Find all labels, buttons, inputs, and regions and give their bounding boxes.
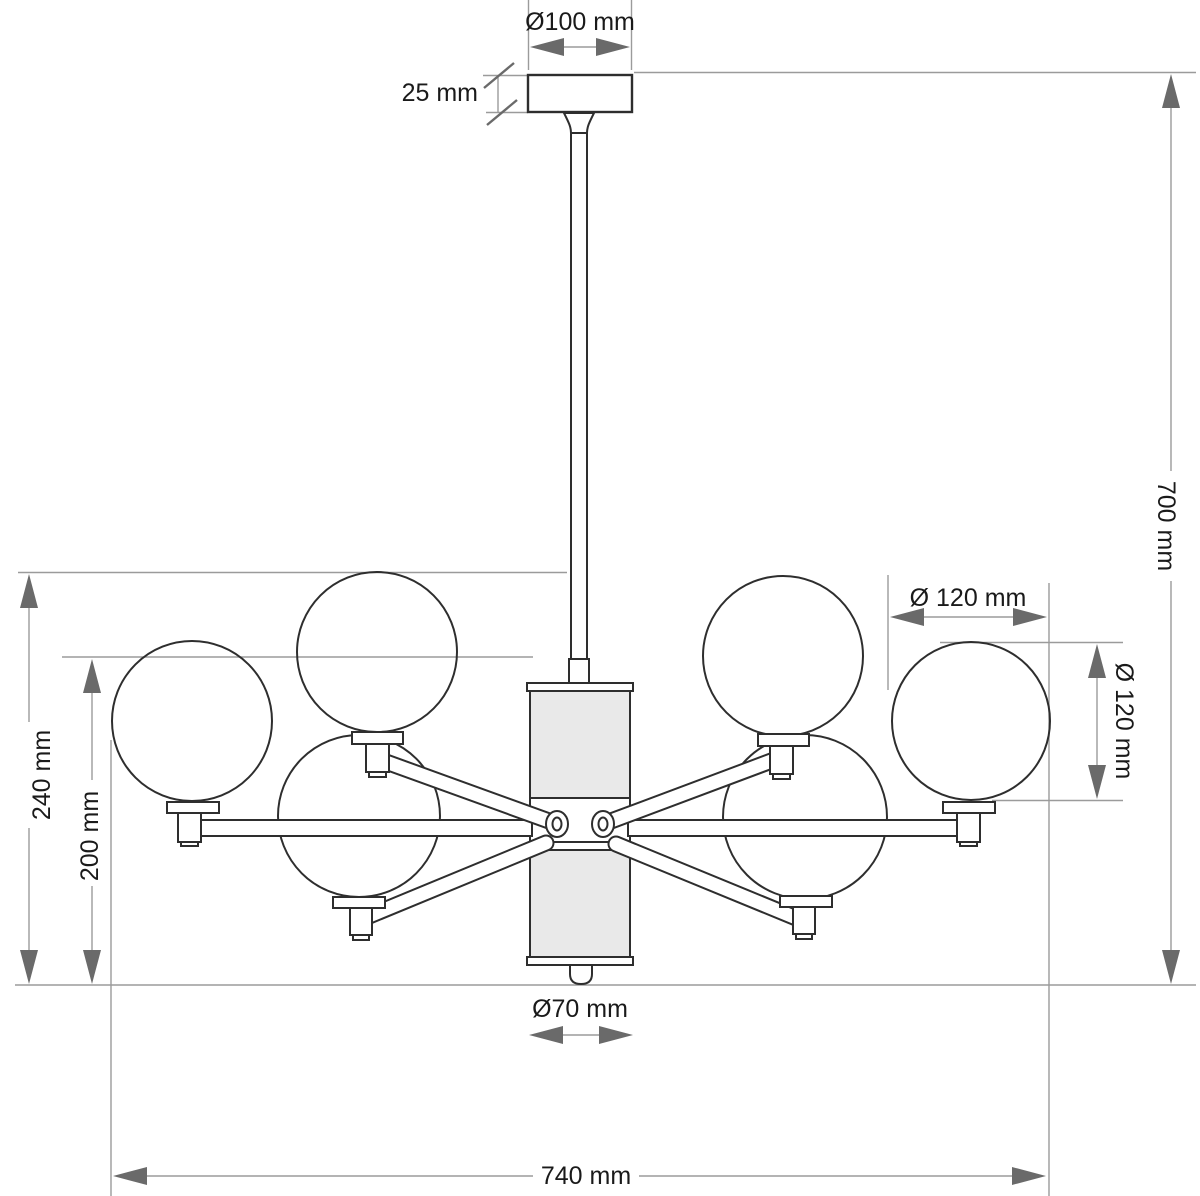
column-lower-body <box>530 850 630 957</box>
fitting-neck <box>957 813 980 842</box>
dim-canopy-height: 25 mm <box>402 63 528 125</box>
arm-diagonal-upper-left <box>386 762 549 821</box>
fitting-neck <box>366 744 389 772</box>
ceiling-canopy <box>528 75 632 112</box>
dim-globe-diameter-height: Ø 120 mm <box>940 643 1138 801</box>
hanger-rod <box>571 112 587 683</box>
dim-label-bottom-diameter: Ø70 mm <box>532 995 628 1023</box>
fitting-collar <box>167 802 219 813</box>
arrowhead-right <box>1012 1167 1046 1185</box>
arm-fill <box>386 762 549 821</box>
drawing-canvas: Ø100 mm 25 mm 700 mm Ø 120 mm Ø 120 mm <box>0 0 1200 1196</box>
arm-diagonal-upper-right <box>611 760 774 821</box>
hub-socket-left-bore <box>553 818 562 831</box>
globe-far-right <box>892 642 1050 800</box>
arrowhead-down <box>20 950 38 984</box>
dim-label-globe-diameter-height: Ø 120 mm <box>1110 663 1138 780</box>
arrowhead-left <box>529 1026 563 1044</box>
fitting-foot <box>181 842 198 846</box>
arm-fill <box>616 844 801 920</box>
fitting-foot <box>369 772 386 777</box>
fitting-neck <box>178 813 201 842</box>
column-top-cap <box>527 683 633 691</box>
dim-label-lower-globes-height: 200 mm <box>76 791 104 881</box>
arrowhead-up <box>20 574 38 608</box>
arm-horizontal-left <box>196 820 532 836</box>
column-upper-body <box>530 691 630 798</box>
globe-upper-right <box>703 576 863 736</box>
column-bottom-cap <box>527 957 633 965</box>
dim-label-upper-globes-height: 240 mm <box>28 730 56 820</box>
fitting-collar <box>758 734 809 746</box>
dim-bottom-diameter: Ø70 mm <box>529 995 633 1044</box>
dim-overall-height: 700 mm <box>634 73 1196 985</box>
arrowhead-left <box>113 1167 147 1185</box>
fitting-collar <box>780 896 832 907</box>
dim-label-canopy-diameter: Ø100 mm <box>525 8 635 36</box>
fitting-neck <box>350 908 372 935</box>
dim-label-globe-diameter-width: Ø 120 mm <box>910 584 1027 612</box>
dim-label-overall-width: 740 mm <box>541 1162 631 1190</box>
technical-drawing: Ø100 mm 25 mm 700 mm Ø 120 mm Ø 120 mm <box>0 0 1200 1196</box>
arm-horizontal-right <box>628 820 960 836</box>
arrowhead-down <box>83 950 101 984</box>
rod-sleeve <box>569 659 589 683</box>
dim-canopy-diameter: Ø100 mm <box>525 0 635 70</box>
fitting-foot <box>353 935 369 940</box>
arrowhead-right <box>596 38 630 56</box>
arrowhead-up <box>1088 644 1106 678</box>
arrowhead-left <box>530 38 564 56</box>
fitting-neck <box>793 907 815 934</box>
fitting-foot <box>960 842 977 846</box>
center-column <box>527 683 633 984</box>
arm-diagonal-lower-left <box>362 843 546 919</box>
dim-label-canopy-height: 25 mm <box>402 79 478 107</box>
arrowhead-down <box>1162 950 1180 984</box>
dim-globe-diameter-width: Ø 120 mm <box>888 575 1047 690</box>
arrowhead-up <box>83 659 101 693</box>
rod-trumpet-joint <box>564 113 594 133</box>
arm-fill <box>362 843 546 919</box>
arrowhead-right <box>599 1026 633 1044</box>
arm-fill <box>611 760 774 821</box>
globe-lower-left <box>278 735 440 897</box>
dim-label-overall-height: 700 mm <box>1152 481 1180 571</box>
fitting-foot <box>796 934 812 939</box>
fitting-foot <box>773 774 790 779</box>
arrowhead-up <box>1162 74 1180 108</box>
arm-diagonal-lower-right <box>616 844 801 920</box>
fitting-neck <box>770 746 793 774</box>
fitting-collar <box>333 897 385 908</box>
fitting-collar <box>943 802 995 813</box>
dim-upper-globes-height: 240 mm <box>18 573 567 985</box>
globe-far-left <box>112 641 272 801</box>
globe-upper-left <box>297 572 457 732</box>
arrowhead-down <box>1088 765 1106 799</box>
chandelier <box>112 75 1050 984</box>
suspension <box>528 75 632 683</box>
fitting-collar <box>352 732 403 744</box>
globe-lower-right <box>723 735 887 899</box>
bottom-finial <box>570 965 592 984</box>
hub-socket-right-bore <box>599 818 608 831</box>
